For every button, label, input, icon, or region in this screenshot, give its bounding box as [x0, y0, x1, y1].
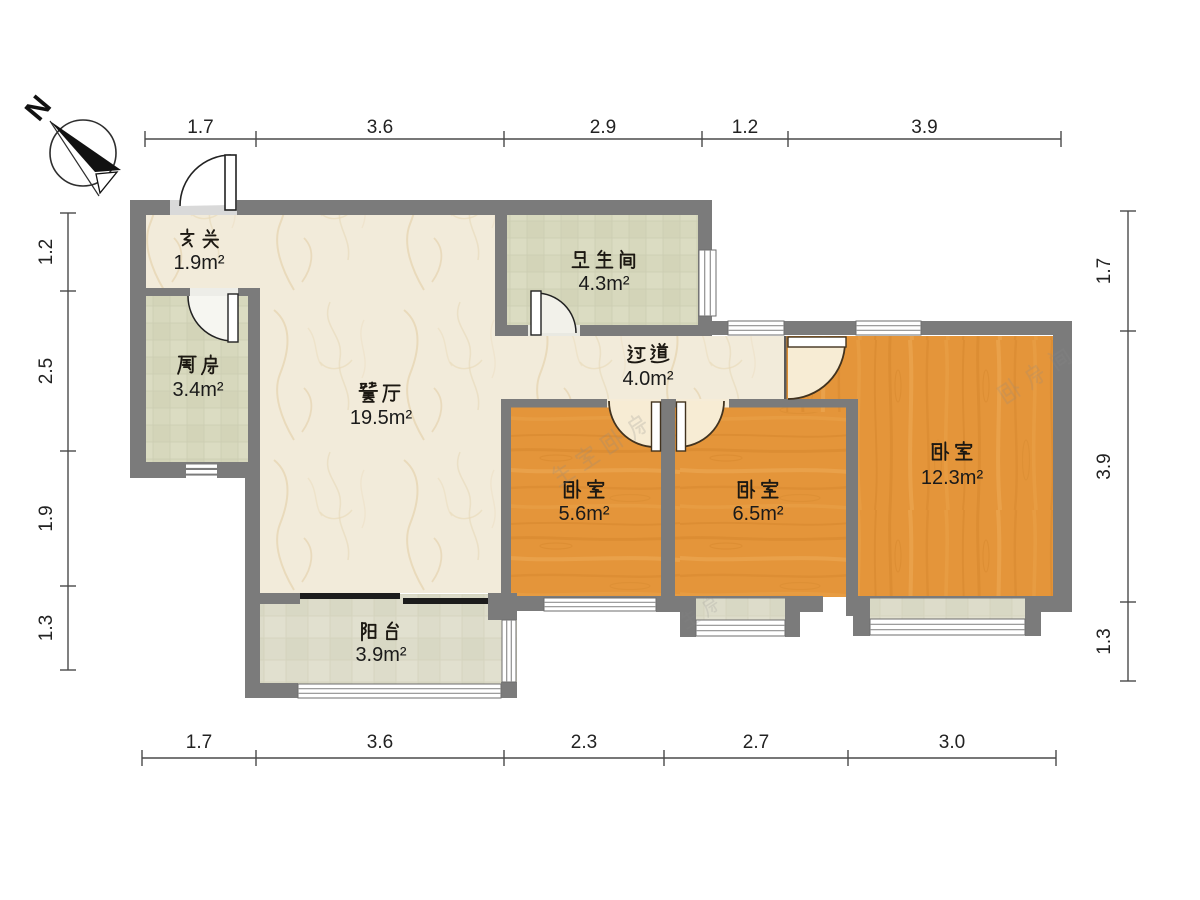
svg-text:1.2: 1.2 [732, 117, 758, 138]
svg-text:1.9m²: 1.9m² [173, 252, 224, 274]
svg-text:2.7: 2.7 [743, 732, 769, 753]
svg-text:2.9: 2.9 [590, 117, 616, 138]
svg-text:1.3: 1.3 [36, 615, 57, 641]
svg-text:3.9m²: 3.9m² [355, 644, 406, 666]
svg-text:3.4m²: 3.4m² [172, 379, 223, 401]
svg-text:5.6m²: 5.6m² [558, 503, 609, 525]
svg-text:12.3m²: 12.3m² [921, 467, 984, 489]
svg-text:19.5m²: 19.5m² [350, 407, 413, 429]
svg-text:6.5m²: 6.5m² [732, 503, 783, 525]
svg-text:3.6: 3.6 [367, 117, 393, 138]
svg-text:1.2: 1.2 [36, 239, 57, 265]
svg-text:4.0m²: 4.0m² [622, 368, 673, 390]
svg-text:3.9: 3.9 [1094, 453, 1115, 479]
svg-text:1.9: 1.9 [36, 505, 57, 531]
svg-text:3.6: 3.6 [367, 732, 393, 753]
svg-text:2.5: 2.5 [36, 358, 57, 384]
svg-text:3.0: 3.0 [939, 732, 965, 753]
svg-text:3.9: 3.9 [911, 117, 937, 138]
svg-text:1.7: 1.7 [1094, 258, 1115, 284]
svg-text:1.3: 1.3 [1094, 628, 1115, 654]
svg-text:1.7: 1.7 [187, 117, 213, 138]
svg-text:4.3m²: 4.3m² [578, 273, 629, 295]
svg-text:N: N [19, 89, 58, 127]
svg-text:2.3: 2.3 [571, 732, 597, 753]
svg-text:1.7: 1.7 [186, 732, 212, 753]
